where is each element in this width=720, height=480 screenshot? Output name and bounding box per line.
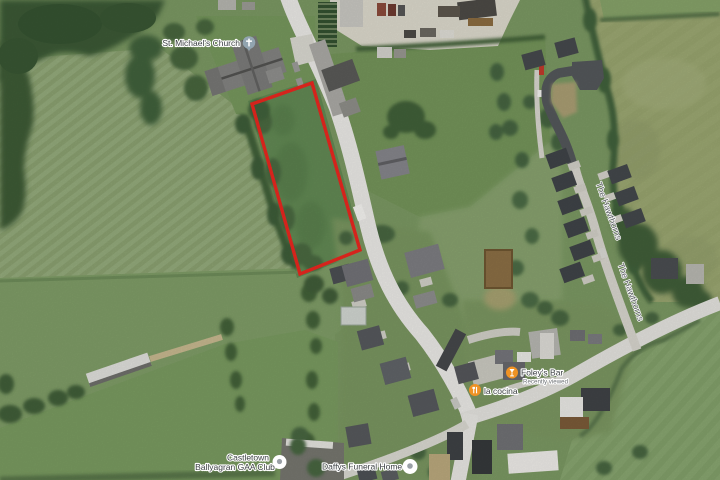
svg-text:Ballyagran GAA Club: Ballyagran GAA Club: [195, 462, 275, 472]
svg-text:Recently viewed: Recently viewed: [523, 379, 569, 386]
svg-text:Daffys Funeral Home: Daffys Funeral Home: [322, 462, 402, 472]
svg-text:Castletown: Castletown: [227, 453, 269, 463]
svg-text:Foley's Bar: Foley's Bar: [521, 368, 563, 378]
svg-text:la cocina: la cocina: [484, 386, 518, 396]
svg-text:St. Michael's Church: St. Michael's Church: [162, 38, 240, 48]
